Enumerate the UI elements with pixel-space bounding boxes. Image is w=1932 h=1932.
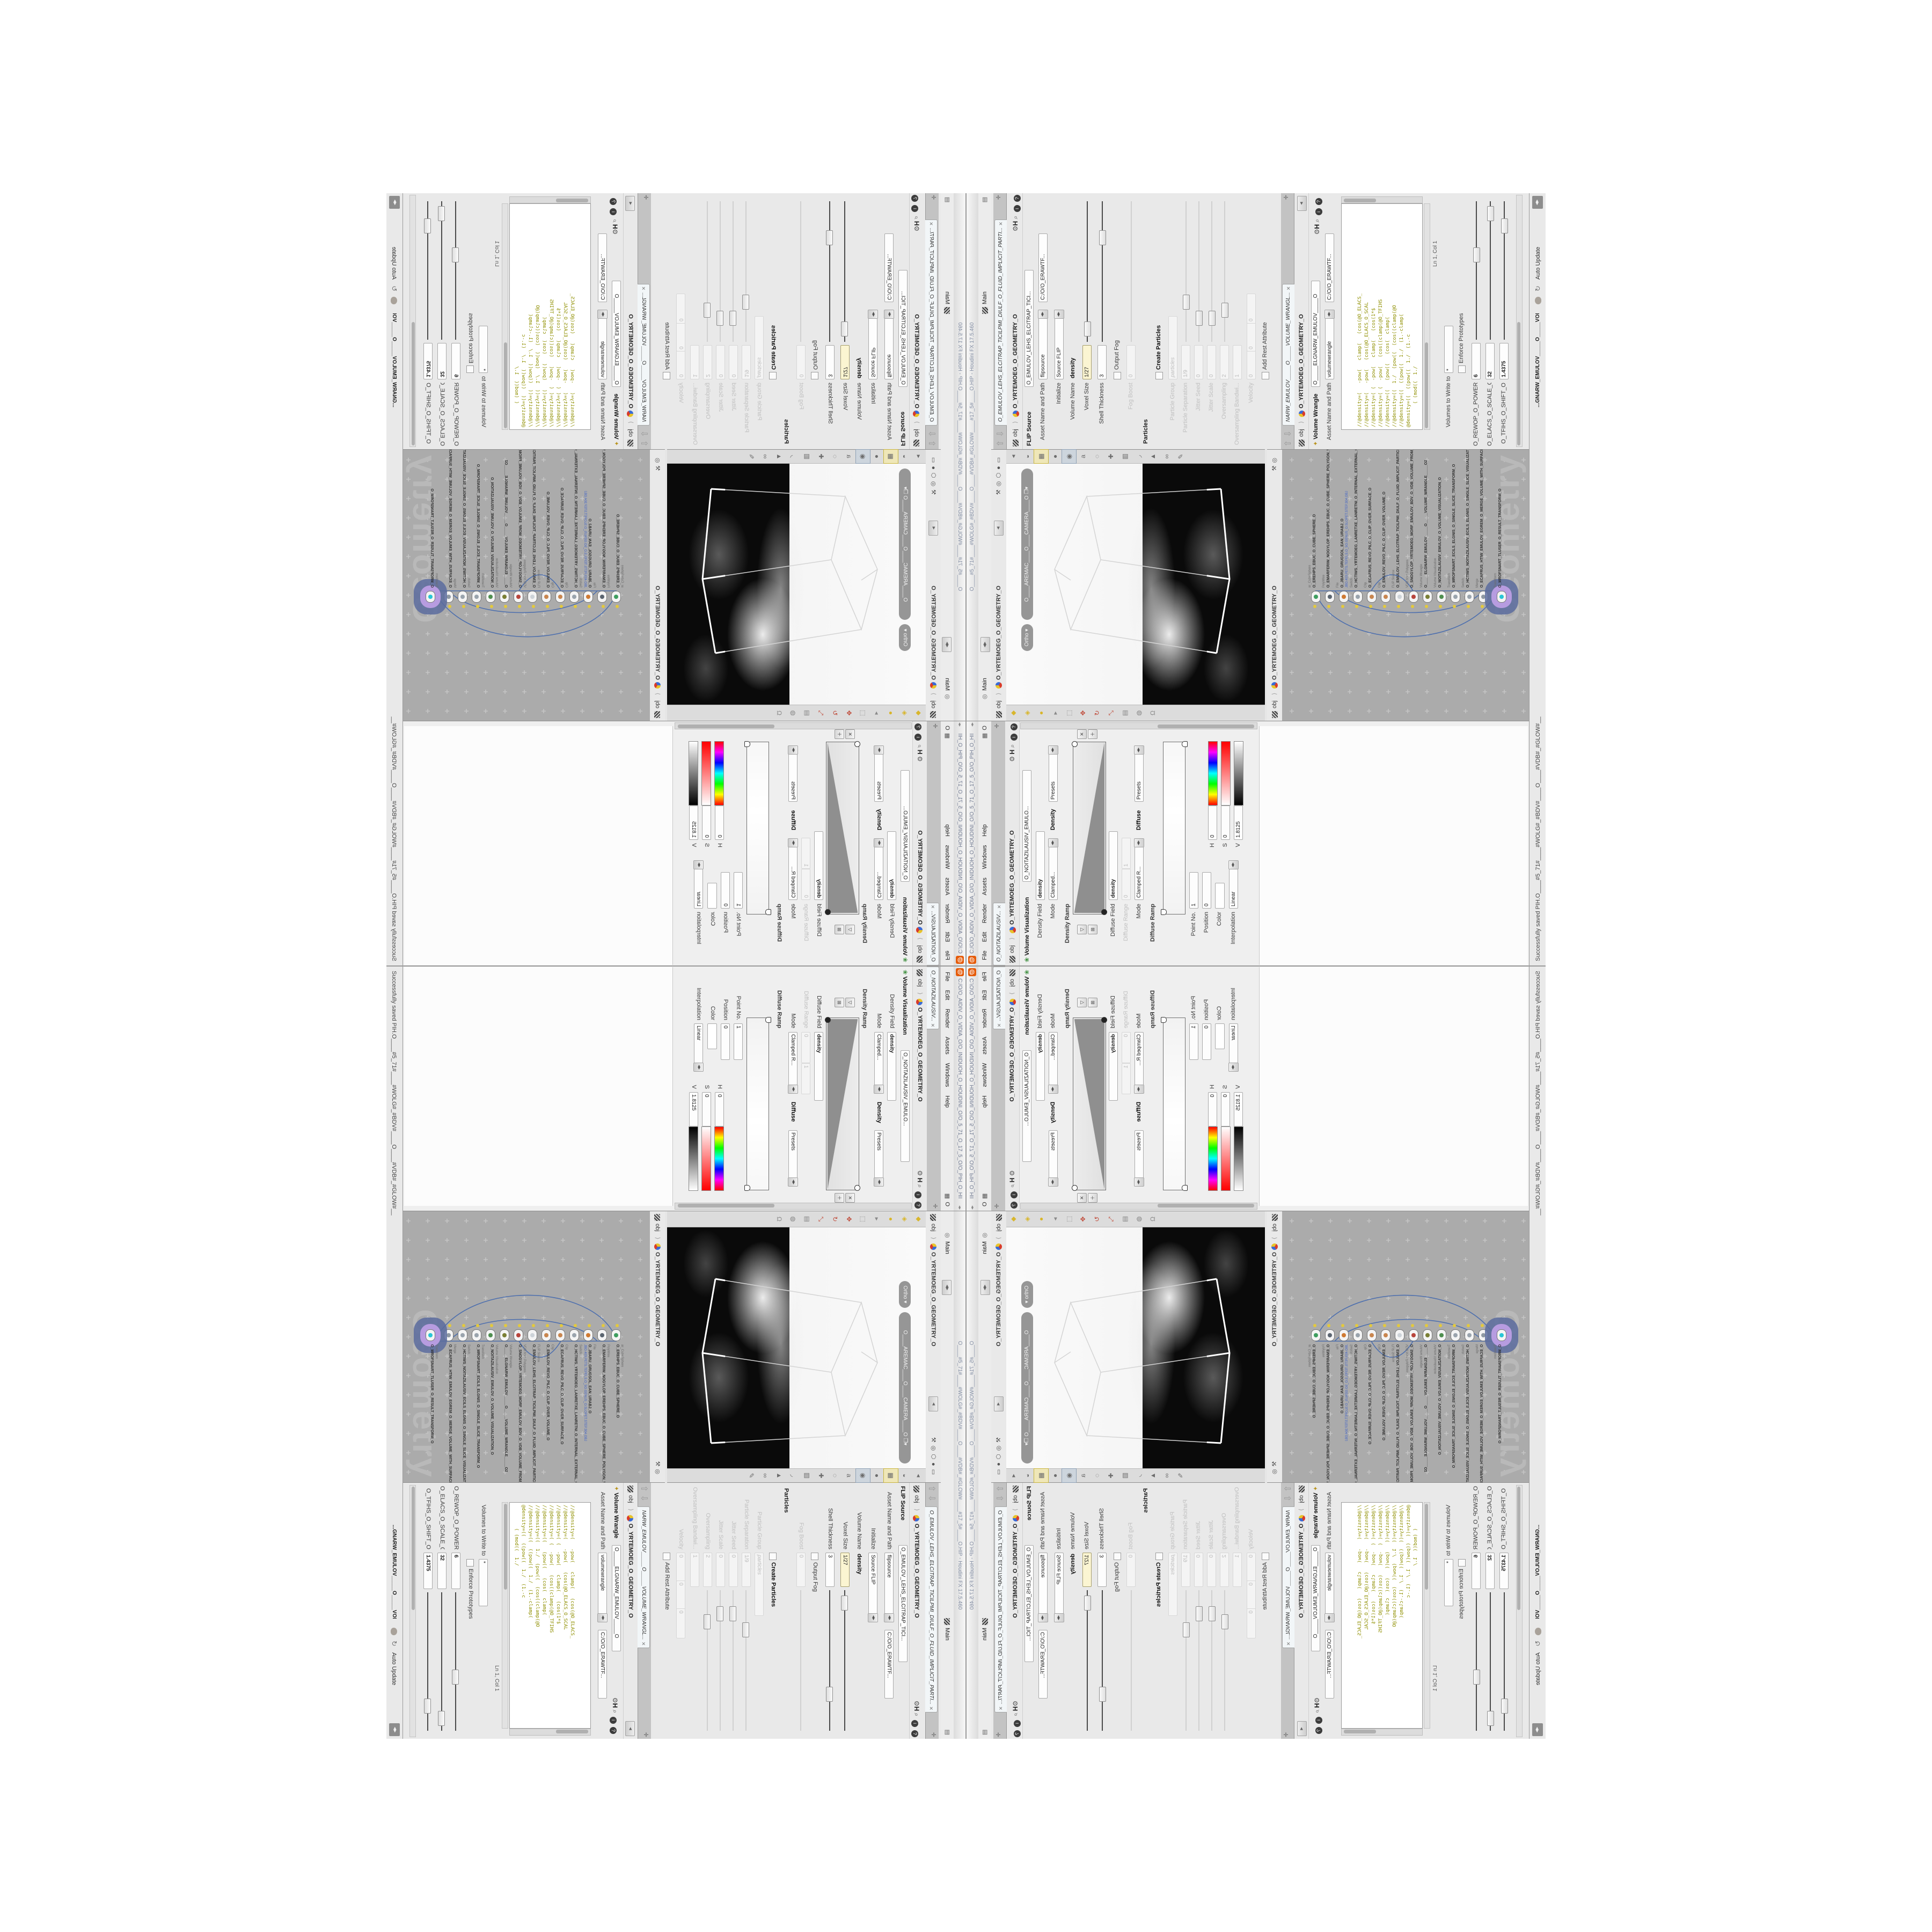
shell-thickness-slider[interactable]: [1102, 201, 1103, 342]
info-icon[interactable]: i: [1011, 1191, 1018, 1198]
viewport-header-icons[interactable]: ⚒◎⬡●▭: [926, 1437, 941, 1478]
scrollbar-thumb[interactable]: [1158, 1204, 1254, 1207]
oversampling-field[interactable]: 2: [703, 345, 712, 379]
toolbar-icon[interactable]: ●: [1034, 1211, 1048, 1227]
search-icon[interactable]: ⌕: [913, 216, 920, 219]
breadcrumb-node[interactable]: O_YRTEMOEG_O_GEOMETRY_O: [926, 1252, 941, 1367]
point-no-field[interactable]: 1: [734, 872, 743, 909]
asset-path2-field[interactable]: C:/O/O_ERAWTF...: [1038, 1630, 1048, 1699]
node-body[interactable]: [541, 1329, 551, 1341]
node-flag-icon[interactable]: [1397, 1324, 1400, 1327]
node-body[interactable]: [1409, 1329, 1418, 1341]
asset-path-field[interactable]: volumewrangle: [1325, 1553, 1334, 1616]
menu-item[interactable]: File: [944, 947, 950, 963]
node-flag-icon[interactable]: [1397, 605, 1400, 608]
shell-thickness-slider[interactable]: [829, 201, 830, 342]
breadcrumb-node[interactable]: O_YRTEMOEG_O_GEOMETRY_O: [913, 812, 927, 925]
update-loop-icon[interactable]: ↻: [386, 286, 402, 291]
asset-path2-field[interactable]: C:/O/O_ERAWTF...: [884, 1630, 894, 1699]
diffuse-range-max[interactable]: 1: [1122, 1063, 1131, 1094]
toolbar-icon[interactable]: ▤: [800, 1211, 814, 1227]
node-flag-icon[interactable]: [532, 605, 535, 608]
pane-split-icon[interactable]: ✛: [930, 195, 937, 200]
ramp-add-icon[interactable]: ＋: [1088, 729, 1097, 739]
node-body[interactable]: [541, 591, 551, 603]
desktop-selector[interactable]: Main: [941, 291, 954, 304]
wrangle-pane-tab[interactable]: NARW_EMULOV_____O_____VOLUME_WRANGL...✕: [1282, 284, 1294, 426]
mode-spinner[interactable]: ◀▶: [1048, 838, 1058, 847]
menubar-scroll-box[interactable]: ◀▶: [942, 1280, 952, 1295]
diffuse-presets-select[interactable]: Presets: [1135, 752, 1144, 802]
interpolation-select[interactable]: Linear: [1229, 867, 1238, 909]
toolbar-icon[interactable]: ⬚: [1062, 1211, 1076, 1227]
gear-icon[interactable]: ⚙: [916, 1170, 924, 1176]
help-icon[interactable]: ?: [1011, 723, 1018, 730]
h-language-icon[interactable]: H: [1008, 1178, 1016, 1183]
menu-item[interactable]: Help: [982, 821, 988, 840]
presets2-spinner[interactable]: ◀▶: [1134, 1177, 1144, 1187]
value-field[interactable]: 1.8125: [689, 806, 698, 840]
help-icon[interactable]: ?: [1011, 1202, 1018, 1209]
diffuse-ramp-handle-left[interactable]: [1161, 909, 1167, 915]
param-slider[interactable]: [1490, 1592, 1491, 1731]
density-mode-select[interactable]: Clamped...: [1049, 1032, 1058, 1087]
network-header-icons[interactable]: ⚒◎: [650, 455, 665, 471]
h-language-icon[interactable]: H: [1313, 1703, 1321, 1708]
menu-item[interactable]: Render: [982, 1006, 988, 1031]
saturation-gradient-slider[interactable]: [701, 741, 711, 806]
path-spinner[interactable]: ◀▶: [1324, 1613, 1335, 1622]
node-flag-icon[interactable]: [1439, 1324, 1442, 1327]
toolbar-icon[interactable]: Ω: [772, 1211, 786, 1227]
gear-icon[interactable]: ⚙: [611, 1697, 619, 1703]
point-no-field[interactable]: 1: [734, 1023, 743, 1060]
diffuse-range-max[interactable]: 1: [801, 1063, 810, 1094]
diffuse-ramp-editor[interactable]: [1163, 742, 1185, 914]
param-value-field[interactable]: 6: [1472, 343, 1481, 379]
display-option-icon[interactable]: ▥: [1118, 1469, 1132, 1482]
path-collapse-icon[interactable]: ◀: [928, 1396, 938, 1411]
jitter-scale-field[interactable]: 0: [1207, 345, 1216, 379]
pane-split-icon[interactable]: ✛: [1283, 1732, 1290, 1737]
node-flag-icon[interactable]: [1453, 605, 1456, 608]
value-field[interactable]: 1.8125: [1234, 1092, 1243, 1126]
density-field-input[interactable]: density: [1036, 831, 1045, 900]
breadcrumb-node[interactable]: O_YRTEMOEG_O_GEOMETRY_O: [913, 1007, 927, 1120]
display-option-icon[interactable]: ◉: [856, 1469, 870, 1482]
display-option-icon[interactable]: ✚: [814, 450, 828, 463]
h-language-icon[interactable]: H: [1008, 750, 1016, 755]
close-icon[interactable]: ✕: [927, 905, 939, 909]
update-loop-icon[interactable]: ↻: [1529, 286, 1546, 291]
camera-pill[interactable]: O____AREMAC____O____CAMERA____O ❐▾: [1021, 469, 1033, 620]
saturation-gradient-slider[interactable]: [1221, 1126, 1231, 1191]
hue-gradient-slider[interactable]: [714, 741, 724, 806]
ortho-pill[interactable]: Ortho ▾: [899, 624, 911, 651]
slider-handle[interactable]: [1501, 1699, 1508, 1714]
oversampling-bw-field[interactable]: 1: [1233, 1553, 1242, 1587]
gear-icon[interactable]: ⚙: [916, 756, 924, 762]
node-body[interactable]: [528, 591, 537, 603]
ramp-point-start[interactable]: [825, 1017, 831, 1023]
color-swatch[interactable]: [707, 1023, 717, 1049]
color-swatch[interactable]: [1215, 883, 1225, 909]
breadcrumb-root[interactable]: obj: [624, 429, 638, 437]
node-flag-icon[interactable]: [616, 605, 619, 608]
ramp-point-end[interactable]: [854, 1185, 860, 1191]
breadcrumb-node[interactable]: O_YRTEMOEG_O_GEOMETRY_O: [1008, 301, 1022, 408]
slider-handle[interactable]: [1473, 1670, 1480, 1685]
toolbar-icon[interactable]: ⤡: [814, 1211, 828, 1227]
node-flag-icon[interactable]: [1467, 605, 1470, 608]
path-collapse-icon[interactable]: ◀: [994, 1396, 1004, 1411]
menu-item[interactable]: File: [944, 969, 950, 985]
code-vscroll[interactable]: [1341, 196, 1423, 203]
toolbar-icon[interactable]: ⤡: [1104, 1211, 1118, 1227]
density-ramp-editor[interactable]: [1073, 1018, 1106, 1190]
jitter-seed-field[interactable]: 0: [1194, 1553, 1203, 1587]
ramp-point-start[interactable]: [1101, 1017, 1107, 1023]
ramp-flip-icon[interactable]: ▽: [1077, 925, 1087, 934]
interp-spinner[interactable]: ◀▶: [693, 860, 704, 869]
code-vscroll[interactable]: [1341, 1729, 1423, 1736]
toolbar-icon[interactable]: ↻: [828, 1211, 842, 1227]
asset-path-field[interactable]: flipsource: [884, 316, 894, 379]
slider-handle[interactable]: [452, 247, 459, 262]
oversampling-field[interactable]: 2: [703, 1553, 712, 1587]
presets2-spinner[interactable]: ◀▶: [788, 745, 798, 755]
display-option-icon[interactable]: ✎: [744, 1469, 758, 1482]
flip-pane-tab[interactable]: O_EMULOV_LEHS_ELCITRAP_TICILPMI_DIULF_O_…: [994, 219, 1007, 426]
close-icon[interactable]: ✕: [995, 222, 1007, 226]
h-language-icon[interactable]: H: [1012, 1707, 1019, 1711]
gear-icon[interactable]: ⚙: [611, 229, 619, 235]
menu-item[interactable]: Windows: [944, 1060, 950, 1091]
breadcrumb-node[interactable]: O_YRTEMOEG_O_GEOMETRY_O: [1294, 1524, 1308, 1631]
display-option-icon[interactable]: ◂: [912, 1469, 926, 1482]
node-body[interactable]: [1339, 591, 1349, 603]
node-flag-icon[interactable]: [1327, 1324, 1330, 1327]
node-flag-icon[interactable]: [1425, 1324, 1428, 1327]
diffuse-field-input[interactable]: density: [1109, 1032, 1118, 1101]
breadcrumb-node[interactable]: O_YRTEMOEG_O_GEOMETRY_O: [991, 1252, 1006, 1367]
float-window-titlebar[interactable]: @ C:/O/O_AIDIV_O_VIDIA_O/O_INIDUOH_O_HOU…: [953, 721, 965, 965]
node-body[interactable]: [458, 1329, 467, 1341]
ramp-add-icon[interactable]: ＋: [1088, 1193, 1097, 1203]
auto-update-selector[interactable]: Auto Update: [1529, 1652, 1546, 1685]
toolbar-icon[interactable]: ◍: [786, 1211, 800, 1227]
display-option-icon[interactable]: ✚: [1104, 450, 1118, 463]
path-spinner[interactable]: ◀▶: [597, 310, 608, 319]
node-flag-icon[interactable]: [588, 605, 591, 608]
node-flag-icon[interactable]: [1327, 605, 1330, 608]
param-value-field[interactable]: 6: [451, 343, 460, 379]
mode-spinner[interactable]: ◀▶: [1048, 1085, 1058, 1094]
fog-boost-field[interactable]: 0: [1126, 1553, 1136, 1587]
desktop-left-label[interactable]: Main: [941, 1241, 954, 1254]
toolbar-icon[interactable]: Ω: [1146, 705, 1160, 721]
create-particles-checkbox[interactable]: [1155, 1553, 1163, 1560]
voxel-size-slider[interactable]: [844, 1590, 845, 1731]
presets-spinner[interactable]: ◀▶: [1048, 1177, 1058, 1187]
ramp-point-start[interactable]: [1101, 909, 1107, 915]
node-body[interactable]: [597, 591, 607, 603]
info-icon[interactable]: i: [911, 1720, 918, 1727]
scrollbar-thumb[interactable]: [678, 724, 774, 728]
jump-up-icon[interactable]: ⇧: [995, 440, 1006, 447]
layout-grid-icon[interactable]: ▤: [941, 1730, 954, 1735]
toolbar-icon[interactable]: ◍: [1132, 705, 1146, 721]
value-field[interactable]: 1.8125: [689, 1092, 698, 1126]
velocity-y-field[interactable]: 0: [676, 321, 685, 352]
display-option-icon[interactable]: ◌: [1090, 1469, 1104, 1482]
display-option-icon[interactable]: ◞: [1132, 1469, 1146, 1482]
node-body[interactable]: [472, 591, 481, 603]
param-value-field[interactable]: 32: [437, 343, 447, 379]
velocity-x-field[interactable]: 0: [676, 1553, 685, 1583]
oversampling-bw-field[interactable]: 1: [690, 345, 699, 379]
oversampling-field[interactable]: 2: [1220, 1553, 1229, 1587]
fog-boost-field[interactable]: 0: [796, 345, 806, 379]
ramp-delete-icon[interactable]: ✕: [845, 1193, 855, 1203]
help-icon[interactable]: ?: [610, 198, 617, 205]
param-slider[interactable]: [455, 201, 456, 340]
camera-pill[interactable]: O____AREMAC____O____CAMERA____O ❐▾: [899, 469, 911, 620]
node-name-field[interactable]: O_____ELGNARW_EMULOV_____O: [612, 281, 621, 387]
network-canvas[interactable]: Geometry ar_CubeSphere O_EREHPS_EBUC_O_C…: [1282, 1211, 1529, 1482]
slider-handle[interactable]: [742, 1622, 749, 1637]
status-scroll-box[interactable]: ◀▶: [389, 1723, 400, 1736]
node-body[interactable]: [528, 1329, 537, 1341]
jump-down-icon[interactable]: ⇩: [639, 1495, 649, 1502]
node-body[interactable]: [1409, 591, 1418, 603]
hue-field[interactable]: 0: [1208, 1092, 1217, 1126]
breadcrumb-root[interactable]: obj: [650, 700, 665, 708]
node-flag-icon[interactable]: [1355, 605, 1358, 608]
h-language-icon[interactable]: H: [611, 224, 619, 229]
scrollbar-thumb[interactable]: [678, 1204, 774, 1207]
title-scroll-arrows-icon[interactable]: ◂▸: [967, 722, 978, 727]
network-header-icons[interactable]: ⚒◎: [650, 1461, 665, 1477]
gear-icon[interactable]: ⚙: [1012, 1701, 1019, 1707]
pane-hscroll[interactable]: [409, 1485, 416, 1737]
velocity-y-field[interactable]: 0: [1247, 321, 1256, 352]
node-body[interactable]: [1325, 1329, 1335, 1341]
toolbar-icon[interactable]: ▸: [1048, 1211, 1062, 1227]
node-body[interactable]: [569, 591, 579, 603]
search-icon[interactable]: ⌕: [913, 1713, 920, 1717]
initialize-spinner[interactable]: ◀▶: [868, 1613, 878, 1622]
velocity-z-field[interactable]: 0: [1247, 1608, 1256, 1638]
breadcrumb-node[interactable]: O_YRTEMOEG_O_GEOMETRY_O: [910, 1524, 924, 1631]
pane-split-icon[interactable]: ✛: [932, 1204, 939, 1209]
node-body[interactable]: [1451, 1329, 1460, 1341]
node-flag-icon[interactable]: [560, 1324, 563, 1327]
flip-pane-tab[interactable]: O_EMULOV_LEHS_ELCITRAP_TICILPMI_DIULF_O_…: [925, 1506, 938, 1713]
jump-down-icon[interactable]: ⇩: [926, 1495, 937, 1502]
slider-handle[interactable]: [424, 218, 431, 233]
hue-field[interactable]: 0: [715, 1092, 724, 1126]
jitter-scale-field[interactable]: 0: [1207, 1553, 1216, 1587]
node-flag-icon[interactable]: [602, 605, 605, 608]
ramp-delete-icon[interactable]: ✕: [845, 729, 855, 739]
velocity-z-field[interactable]: 0: [676, 1608, 685, 1638]
param-scrollbar[interactable]: [675, 722, 912, 729]
mode-spinner[interactable]: ◀▶: [874, 838, 884, 847]
menu-item[interactable]: Render: [944, 901, 950, 926]
layout-grid-icon[interactable]: ▤: [941, 197, 954, 202]
breadcrumb-root[interactable]: obj: [1008, 429, 1022, 437]
display-option-icon[interactable]: ▲: [772, 450, 786, 463]
velocity-y-field[interactable]: 0: [1247, 1580, 1256, 1611]
desktop-compass-icon[interactable]: ◎: [941, 694, 954, 699]
density-field-input[interactable]: density: [887, 1032, 896, 1101]
param-slider[interactable]: [455, 1592, 456, 1731]
position-field[interactable]: 0: [721, 872, 730, 909]
diffuse-ramp-editor[interactable]: [747, 1018, 769, 1190]
code-hscroll[interactable]: [1424, 203, 1430, 430]
search-icon[interactable]: ⌕: [611, 219, 619, 223]
ramp-expand-icon[interactable]: ⊞: [835, 925, 844, 934]
menu-item[interactable]: Assets: [944, 1034, 950, 1058]
pane-hscroll[interactable]: [409, 195, 416, 447]
node-name-field[interactable]: O_NOITAZILAUSIV_EMULO...: [901, 1050, 910, 1162]
density-mode-select[interactable]: Clamped...: [874, 1032, 883, 1087]
jump-down-icon[interactable]: ⇩: [639, 430, 649, 437]
display-option-icon[interactable]: a: [842, 450, 856, 463]
density-field-input[interactable]: density: [1036, 1032, 1045, 1101]
display-option-icon[interactable]: ●: [870, 1469, 884, 1482]
toolbar-icon[interactable]: ✥: [842, 1211, 856, 1227]
oversampling-field[interactable]: 2: [1220, 345, 1229, 379]
fog-boost-slider[interactable]: [800, 201, 801, 342]
node-body[interactable]: [1311, 1329, 1321, 1341]
close-icon[interactable]: ✕: [995, 1706, 1007, 1710]
node-body[interactable]: [1381, 591, 1391, 603]
menu-item[interactable]: Render: [982, 901, 988, 926]
jump-down-icon[interactable]: ⇩: [1283, 1495, 1293, 1502]
breadcrumb-root[interactable]: obj: [624, 1495, 638, 1503]
node-body[interactable]: [1423, 591, 1432, 603]
slider-handle[interactable]: [826, 230, 833, 245]
ramp-add-icon[interactable]: ＋: [835, 1193, 844, 1203]
saturation-field[interactable]: 0: [1221, 1092, 1230, 1126]
add-rest-checkbox[interactable]: [1262, 372, 1269, 379]
initialize-spinner[interactable]: ◀▶: [1054, 1613, 1064, 1622]
display-option-icon[interactable]: a: [1076, 1469, 1090, 1482]
node-body[interactable]: [1465, 591, 1474, 603]
search-icon[interactable]: ⌕: [916, 1184, 924, 1188]
ramp-point-end[interactable]: [1072, 741, 1078, 747]
float-window-titlebar[interactable]: @ C:/O/O_AIDIV_O_VIDIA_O/O_INIDUOH_O_HOU…: [953, 967, 965, 1211]
layout-grid-icon[interactable]: ▤: [978, 197, 991, 202]
particle-separation-field[interactable]: 1/9: [1181, 1553, 1190, 1587]
hue-gradient-slider[interactable]: [1208, 741, 1218, 806]
jump-down-icon[interactable]: ⇩: [926, 430, 937, 437]
h-language-icon[interactable]: H: [611, 1703, 619, 1708]
node-body[interactable]: [1437, 591, 1446, 603]
shell-thickness-field[interactable]: 3: [1097, 345, 1107, 379]
code-hscroll[interactable]: [1424, 1502, 1430, 1729]
node-body[interactable]: [1497, 591, 1506, 603]
particle-group-field[interactable]: particles: [1168, 316, 1177, 379]
display-option-icon[interactable]: ▦: [1034, 1469, 1048, 1482]
display-option-icon[interactable]: ◉: [1062, 1469, 1076, 1482]
enforce-prototypes-checkbox[interactable]: [466, 1559, 474, 1567]
presets2-spinner[interactable]: ◀▶: [1134, 745, 1144, 755]
ramp-expand-icon[interactable]: ⊞: [835, 998, 844, 1007]
pane-split-icon[interactable]: ✛: [993, 1204, 1000, 1209]
oversampling-bw-field[interactable]: 1: [690, 1553, 699, 1587]
saturation-gradient-slider[interactable]: [701, 1126, 711, 1191]
initialize-select[interactable]: Source FLIP: [1055, 316, 1064, 379]
interpolation-select[interactable]: Linear: [694, 1023, 703, 1065]
breadcrumb-root[interactable]: obj: [650, 1224, 665, 1232]
shell-thickness-field[interactable]: 3: [825, 345, 835, 379]
display-option-icon[interactable]: ∞: [1160, 450, 1174, 463]
info-icon[interactable]: i: [1315, 208, 1322, 215]
node-body[interactable]: [1465, 1329, 1474, 1341]
fog-boost-field[interactable]: 0: [796, 1553, 806, 1587]
node-body[interactable]: [514, 1329, 523, 1341]
update-loop-icon[interactable]: ↻: [1529, 1641, 1546, 1646]
gear-icon[interactable]: ⚙: [1008, 1170, 1016, 1176]
node-body[interactable]: [444, 1329, 453, 1341]
vex-snippet-editor[interactable]: //@density=( -pow( clamp( (cos(@O_ELACS_…: [1341, 203, 1423, 430]
diffuse-range-min[interactable]: 0: [801, 1032, 810, 1063]
help-icon[interactable]: ?: [914, 1202, 921, 1209]
menu-item[interactable]: File: [982, 969, 988, 985]
node-flag-icon[interactable]: [574, 605, 577, 608]
jitter-scale-field[interactable]: 0: [716, 1553, 725, 1587]
param-slider[interactable]: [1504, 201, 1505, 340]
status-scroll-box[interactable]: ◀▶: [1532, 1723, 1543, 1736]
toolbar-icon[interactable]: ↻: [1090, 705, 1104, 721]
close-icon[interactable]: ✕: [993, 1023, 1005, 1028]
enforce-prototypes-checkbox[interactable]: [1458, 1559, 1466, 1567]
viewport-canvas[interactable]: Ortho ▾ O____AREMAC____O____CAMERA____O …: [667, 463, 926, 705]
help-icon[interactable]: ?: [914, 723, 921, 730]
path-collapse-icon[interactable]: ◀: [625, 1721, 635, 1736]
param-slider[interactable]: [1490, 201, 1491, 340]
info-icon[interactable]: i: [1014, 1720, 1021, 1727]
shell-thickness-field[interactable]: 3: [825, 1553, 835, 1587]
node-flag-icon[interactable]: [1425, 605, 1428, 608]
window-layout-icon[interactable]: ▦: [978, 1194, 991, 1199]
breadcrumb-node[interactable]: O_YRTEMOEG_O_GEOMETRY_O: [650, 557, 665, 680]
density-presets-select[interactable]: Presets: [874, 1130, 883, 1180]
node-body[interactable]: [1367, 1329, 1377, 1341]
viewport-header-icons[interactable]: ⚒◎⬡●▭: [991, 1437, 1006, 1478]
jump-up-icon[interactable]: ⇧: [926, 440, 937, 447]
menu-item[interactable]: Assets: [944, 874, 950, 898]
node-body[interactable]: [444, 591, 453, 603]
breadcrumb-root[interactable]: obj: [1267, 700, 1282, 708]
path-collapse-icon[interactable]: ◀: [625, 196, 635, 211]
ramp-flip-icon[interactable]: ▽: [1077, 998, 1087, 1007]
toolbar-icon[interactable]: ◍: [786, 705, 800, 721]
pane-split-icon[interactable]: ✛: [995, 195, 1002, 200]
breadcrumb-root[interactable]: obj: [991, 1224, 1006, 1232]
pane-split-icon[interactable]: ✛: [995, 1732, 1002, 1737]
menu-item[interactable]: Help: [944, 1092, 950, 1111]
mode2-spinner[interactable]: ◀▶: [1134, 838, 1144, 847]
path-spinner[interactable]: ◀▶: [1038, 310, 1048, 319]
oversampling-bw-field[interactable]: 1: [1233, 345, 1242, 379]
code-vscroll[interactable]: [509, 196, 591, 203]
param-value-field[interactable]: 1.4375: [423, 1553, 433, 1589]
desktop-left-label[interactable]: Main: [941, 678, 954, 691]
